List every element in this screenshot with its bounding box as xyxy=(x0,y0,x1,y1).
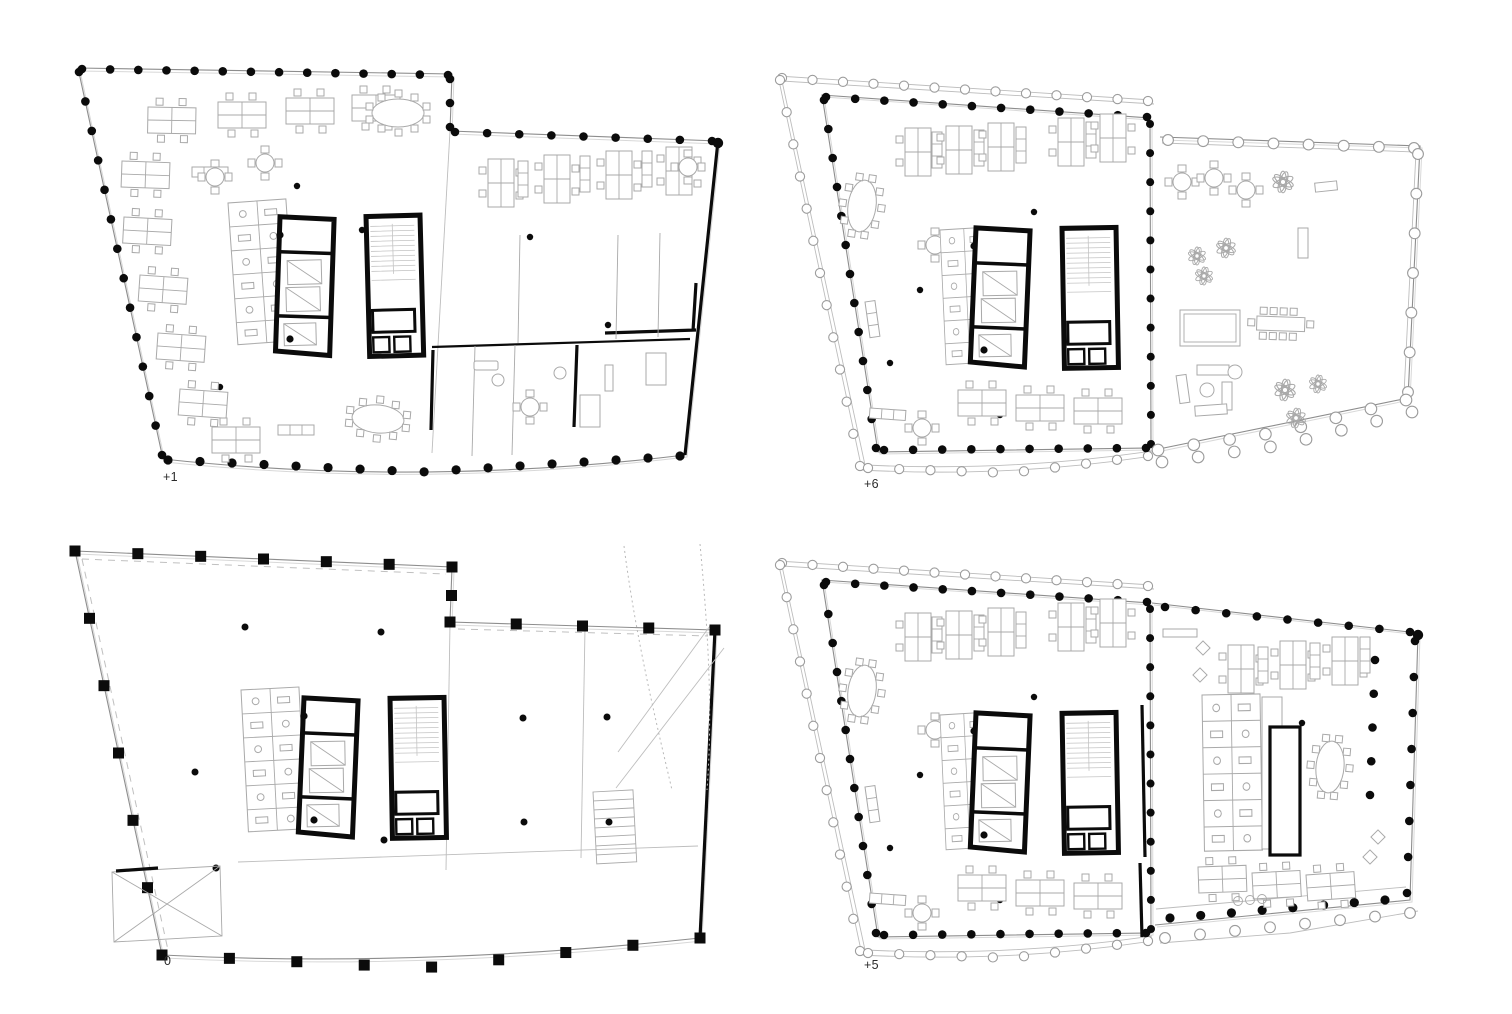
roof-terrace xyxy=(1152,135,1423,468)
ramp xyxy=(112,866,222,942)
plan-zero-label: 0 xyxy=(164,954,171,968)
plan-plus5-drawing xyxy=(770,545,1442,985)
plan-plus1-label: +1 xyxy=(163,470,178,484)
plan-plus1-drawing xyxy=(60,55,730,500)
plan-plus6-label: +6 xyxy=(864,477,879,491)
plan-plus6-drawing xyxy=(770,60,1442,505)
office-annex xyxy=(1140,603,1423,944)
plan-plus5-label: +5 xyxy=(864,958,879,972)
floor-plan-sheet: +1 +6 0 +5 xyxy=(0,0,1512,1014)
plan-zero-drawing xyxy=(58,540,730,980)
